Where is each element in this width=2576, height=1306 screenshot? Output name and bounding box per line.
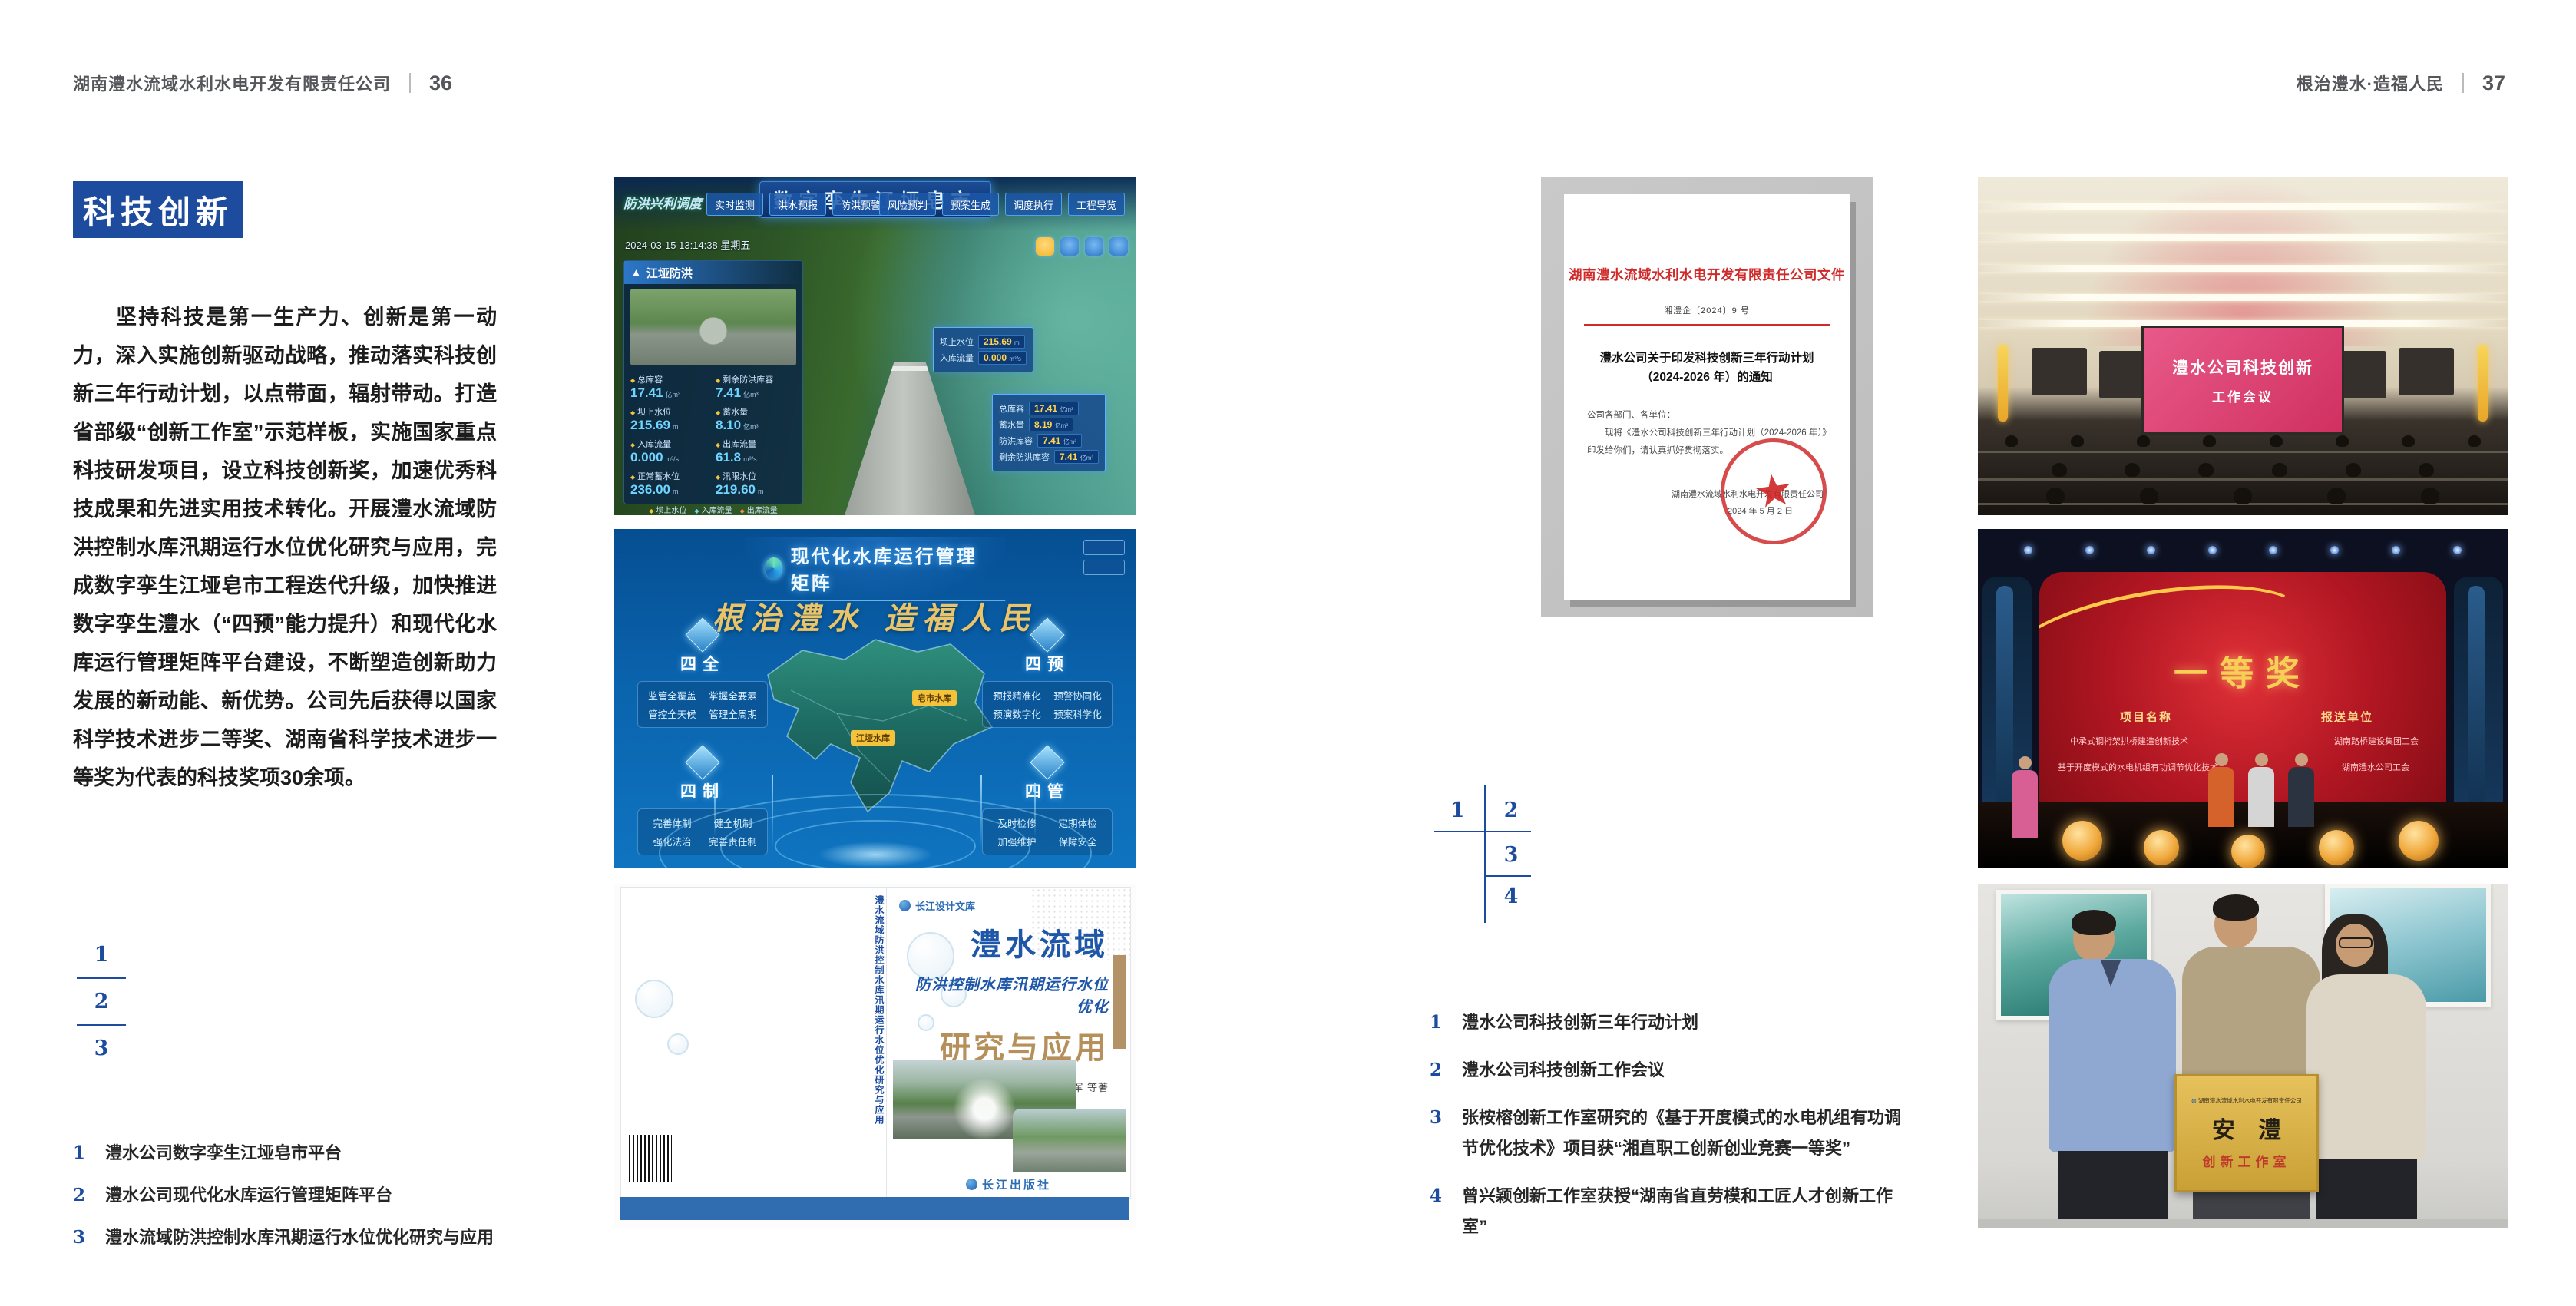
stat-cell: 剩余防洪库容7.41亿m³	[716, 373, 796, 402]
screen-button	[1083, 560, 1125, 575]
diamond-icon	[685, 617, 719, 652]
screen-subtitle: 工作会议	[2212, 386, 2273, 405]
page-number-right: 37	[2482, 71, 2505, 95]
audience-row	[2009, 488, 2477, 504]
figure-digital-twin-dashboard: 防洪兴利调度 数字孪生江垭皂市 实时监测 洪水预报 防洪预警 风险预判 预案生成…	[614, 177, 1136, 515]
stat-cell: 总库容17.41亿m³	[630, 373, 711, 402]
user-icon	[1036, 237, 1054, 256]
water-level-tooltip: 坝上水位215.69 m 入库流量0.000 m³/s	[933, 327, 1033, 372]
stat-cell: 汛限水位219.60m	[716, 470, 796, 499]
publisher-icon	[966, 1179, 977, 1190]
face	[2214, 901, 2257, 948]
studio-plaque: 湖南澧水流域水利水电开发有限责任公司 安澧 创新工作室	[2174, 1074, 2319, 1192]
star-icon: ★	[1751, 467, 1797, 517]
mountain-icon: ▲	[630, 266, 642, 279]
map-marker-zaoshi: 皂市水库	[912, 690, 957, 706]
floor-strip	[1978, 1219, 2508, 1228]
light-pillar	[980, 775, 982, 848]
caption-text: 张桉榕创新工作室研究的《基于开度模式的水电机组有功调节优化技术》项目获“湘直职工…	[1462, 1103, 1915, 1164]
group-name: 四预	[982, 652, 1113, 675]
stat-cell: 坝上水位215.69m	[630, 405, 711, 435]
dashboard-timestamp: 2024-03-15 13:14:38 星期五	[625, 237, 750, 252]
figure-number-divider	[77, 1024, 126, 1026]
award-row-project: 中承式钢桁架拱桥建造创新技术	[2070, 735, 2188, 747]
wall-panel	[2032, 348, 2087, 395]
caption-number: 4	[1430, 1181, 1462, 1212]
tab-project-tour: 工程导览	[1068, 193, 1125, 216]
globe-icon	[899, 900, 911, 911]
stage-spotlights	[2024, 546, 2462, 554]
figure-official-document: 湖南澧水流域水利水电开发有限责任公司文件 湘澧企〔2024〕9 号 澧水公司关于…	[1541, 177, 1873, 617]
award-row-unit: 湖南路桥建设集团工会	[2334, 735, 2419, 747]
caption-text: 澧水流域防洪控制水库汛期运行水位优化研究与应用	[105, 1222, 494, 1253]
book-title-region: 澧水流域	[903, 920, 1109, 964]
plaque-company-line: 湖南澧水流域水利水电开发有限责任公司	[2191, 1096, 2302, 1105]
group-name: 四全	[637, 652, 768, 675]
stage-light-orb	[2399, 821, 2439, 861]
figure-number: 1	[77, 943, 126, 967]
header-divider	[409, 73, 411, 93]
caption-item: 2 澧水公司现代化水库运行管理矩阵平台	[73, 1180, 503, 1211]
caption-text: 澧水公司科技创新工作会议	[1462, 1055, 1665, 1086]
stat-cell: 入库流量0.000m³/s	[630, 438, 711, 467]
figure-studio-group-photo: 湖南澧水流域水利水电开发有限责任公司 安澧 创新工作室	[1978, 884, 2508, 1228]
stage-light-orb	[2144, 830, 2179, 865]
glasses	[2339, 937, 2373, 948]
ripple-glow	[818, 841, 933, 868]
figure-number: 4	[1494, 884, 1528, 908]
figure-number: 1	[1440, 798, 1474, 822]
figure-meeting-photo: 澧水公司科技创新 工作会议	[1978, 177, 2508, 515]
header-divider	[2462, 73, 2464, 93]
layers-icon	[1060, 237, 1079, 256]
stat-cell: 正常蓄水位236.00m	[630, 470, 711, 499]
caption-number: 3	[1430, 1103, 1462, 1133]
book-front-cover: 长江设计文库 澧水流域 防洪控制水库汛期运行水位优化 研究与应用 洪兴骏 沈坤民…	[886, 887, 1131, 1199]
wall-panel	[2399, 348, 2454, 395]
desk-row	[1978, 451, 2508, 453]
plaque-studio-label: 创新工作室	[2203, 1151, 2291, 1170]
series-name: 长江设计文库	[915, 898, 975, 913]
series-logo: 长江设计文库	[899, 898, 975, 913]
tab-realtime-monitoring: 实时监测	[706, 193, 763, 216]
tab-flood-forecast: 洪水预报	[769, 193, 826, 216]
audience-row	[1993, 463, 2492, 477]
document-subject: 澧水公司关于印发科技创新三年行动计划 （2024-2026 年）的通知	[1564, 349, 1850, 387]
book-bottom-band	[620, 1197, 1129, 1220]
publisher-mark: 长江出版社	[887, 1176, 1130, 1192]
red-rule	[1584, 324, 1830, 326]
caption-number: 2	[73, 1180, 105, 1211]
document-number: 湘澧企〔2024〕9 号	[1564, 304, 1850, 316]
award-row-unit: 湖南澧水公司工会	[2342, 761, 2409, 773]
pillar-light	[2478, 345, 2488, 422]
chart-legend: 坝上水位 入库流量 出库流量	[624, 502, 802, 515]
ceiling-light	[1978, 234, 2508, 241]
caption-list-left: 1 澧水公司数字孪生江垭皂市平台 2 澧水公司现代化水库运行管理矩阵平台 3 澧…	[73, 1138, 503, 1265]
matrix-header: 现代化水库运行管理矩阵	[745, 537, 1006, 601]
stat-cell: 蓄水量8.10亿m³	[716, 405, 796, 435]
dashboard-tabs-left: 实时监测 洪水预报 防洪预警	[706, 193, 889, 216]
awardee-silhouette	[2208, 767, 2234, 827]
header-right: 根治澧水·造福人民 37	[2297, 71, 2505, 95]
basin-map	[745, 629, 1006, 821]
matrix-group-siyu: 四预 预报精准化预警协同化 预演数字化预案科学化	[982, 623, 1113, 728]
pillar-light	[1998, 345, 2008, 422]
award-title: 一等奖	[2039, 646, 2446, 695]
figure-number-divider	[77, 977, 126, 979]
figure-management-matrix: 现代化水库运行管理矩阵 根治澧水 造福人民 皂市水库 江垭水库 四全 监管全覆盖…	[614, 529, 1136, 868]
grid-hline	[1484, 875, 1531, 877]
caption-text: 澧水公司科技创新三年行动计划	[1462, 1007, 1698, 1038]
reservoir-panel-header: ▲ 江垭防洪	[624, 261, 802, 284]
ceiling-light	[1978, 203, 2508, 210]
ceiling-light	[1978, 294, 2508, 301]
dashboard-mode-label: 防洪兴利调度	[623, 193, 702, 212]
section-title-badge: 科技创新	[73, 181, 243, 238]
figure-number: 2	[77, 990, 126, 1013]
caption-item: 4 曾兴颖创新工作室获授“湖南省直劳模和工匠人才创新工作室”	[1430, 1181, 1915, 1242]
alert-icon	[1109, 237, 1128, 256]
tab-dispatch-execution: 调度执行	[1005, 193, 1062, 216]
host-silhouette	[2012, 770, 2038, 838]
figure-number-column-left: 1 2 3	[77, 943, 126, 1060]
caption-text: 澧水公司现代化水库运行管理矩阵平台	[105, 1180, 392, 1211]
caption-number: 1	[1430, 1007, 1462, 1038]
legs	[2058, 1151, 2168, 1228]
publisher-name: 长江出版社	[982, 1176, 1051, 1192]
figure-number-grid-right: 1 2 3 4	[1430, 782, 1537, 927]
grid-hline	[1434, 831, 1531, 832]
book-back-cover	[620, 887, 866, 1199]
figure-award-ceremony: 一等奖 项目名称 报送单位 中承式钢桁架拱桥建造创新技术 湖南路桥建设集团工会 …	[1978, 529, 2508, 868]
figure-book-cover: 澧水流域防洪控制水库汛期运行水位优化研究与应用 长江设计文库 澧水流域 防洪控制…	[614, 884, 1136, 1228]
group-name: 四管	[982, 779, 1113, 802]
screen-title: 澧水公司科技创新	[2172, 355, 2313, 379]
tan-bar-decoration	[1113, 955, 1126, 1049]
caption-item: 1 澧水公司科技创新三年行动计划	[1430, 1007, 1915, 1038]
grid-vline	[1484, 785, 1486, 923]
reservoir-stats: 总库容17.41亿m³ 剩余防洪库容7.41亿m³ 坝上水位215.69m 蓄水…	[624, 370, 802, 502]
column-header-unit: 报送单位	[2321, 709, 2373, 725]
stage-side-frame	[2454, 577, 2503, 815]
barcode	[626, 1132, 675, 1185]
screen-button	[1083, 540, 1125, 555]
diamond-icon	[1030, 745, 1064, 779]
legs	[2316, 1159, 2417, 1228]
document-header: 湖南澧水流域水利水电开发有限责任公司文件	[1564, 265, 1850, 284]
figure-number: 2	[1494, 798, 1528, 822]
stat-cell: 出库流量61.8m³/s	[716, 438, 796, 467]
plaque-studio-name: 安澧	[2189, 1111, 2304, 1145]
light-pillar	[1034, 783, 1036, 837]
torso	[2306, 974, 2426, 1160]
tab-plan-generation: 预案生成	[942, 193, 999, 216]
company-logo-icon	[765, 557, 783, 579]
document-page: 湖南澧水流域水利水电开发有限责任公司文件 湘澧企〔2024〕9 号 澧水公司关于…	[1564, 194, 1850, 600]
figure-number: 3	[1494, 843, 1528, 867]
caption-number: 1	[73, 1138, 105, 1169]
caption-item: 1 澧水公司数字孪生江垭皂市平台	[73, 1138, 503, 1169]
map-marker-jiangya: 江垭水库	[851, 730, 895, 746]
reservoir-panel-title: 江垭防洪	[646, 265, 693, 281]
caption-number: 3	[73, 1222, 105, 1253]
reservoir-panel: ▲ 江垭防洪 总库容17.41亿m³ 剩余防洪库容7.41亿m³ 坝上水位215…	[623, 260, 803, 504]
group-name: 四制	[637, 779, 768, 802]
locate-icon	[1085, 237, 1103, 256]
dam-thumbnail	[630, 289, 796, 365]
book-title-subject: 防洪控制水库汛期运行水位优化	[903, 972, 1109, 1017]
audience-row	[1978, 435, 2508, 447]
matrix-title: 现代化水库运行管理矩阵	[791, 541, 986, 595]
face	[2073, 916, 2115, 962]
diamond-icon	[1030, 617, 1064, 652]
bubble-decoration	[667, 1033, 689, 1055]
stage-light-orb	[2231, 835, 2265, 868]
caption-item: 2 澧水公司科技创新工作会议	[1430, 1055, 1915, 1086]
led-screen: 一等奖 项目名称 报送单位 中承式钢桁架拱桥建造创新技术 湖南路桥建设集团工会 …	[2039, 572, 2446, 802]
caption-item: 3 张桉榕创新工作室研究的《基于开度模式的水电机组有功调节优化技术》项目获“湘直…	[1430, 1103, 1915, 1164]
header-left: 湖南澧水流域水利水电开发有限责任公司 36	[73, 71, 452, 95]
stage-light-orb	[2062, 821, 2102, 861]
desk-row	[1978, 478, 2508, 481]
tab-risk-prediction: 风险预判	[879, 193, 936, 216]
body-paragraph: 坚持科技是第一生产力、创新是第一动力，深入实施创新驱动战略，推动落实科技创新三年…	[73, 298, 497, 797]
caption-item: 3 澧水流域防洪控制水库汛期运行水位优化研究与应用	[73, 1222, 503, 1253]
page-number-left: 36	[429, 71, 452, 95]
book-spine: 澧水流域防洪控制水库汛期运行水位优化研究与应用	[865, 887, 886, 1199]
matrix-group-siquan: 四全 监管全覆盖掌握全要素 管控全天候管理全周期	[637, 623, 768, 728]
ceiling-light	[1978, 320, 2508, 327]
ceiling-light	[1978, 265, 2508, 272]
caption-text: 澧水公司数字孪生江垭皂市平台	[105, 1138, 342, 1169]
dam-illustration	[845, 362, 975, 515]
award-row-project: 基于开度模式的水电机组有功调节优化技术	[2058, 761, 2218, 773]
dashboard-tool-icons	[1036, 237, 1128, 256]
capacity-info-panel: 总库容17.41 亿m³ 蓄水量8.19 亿m³ 防洪库容7.41 亿m³ 剩余…	[992, 394, 1106, 471]
caption-number: 2	[1430, 1055, 1462, 1086]
powerhouse-photo	[1013, 1109, 1126, 1172]
light-pillar	[772, 775, 773, 848]
bubble-decoration	[635, 980, 673, 1018]
awardee-silhouette	[2248, 767, 2274, 827]
brochure-spread: 湖南澧水流域水利水电开发有限责任公司 36 根治澧水·造福人民 37 科技创新 …	[0, 0, 2576, 1306]
awardee-silhouette	[2288, 767, 2314, 827]
diamond-icon	[685, 745, 719, 779]
caption-list-right: 1 澧水公司科技创新三年行动计划 2 澧水公司科技创新工作会议 3 张桉榕创新工…	[1430, 1007, 1915, 1254]
light-pillar	[714, 783, 716, 837]
slogan-text: 根治澧水·造福人民	[2297, 71, 2444, 95]
caption-text: 曾兴颖创新工作室获授“湖南省直劳模和工匠人才创新工作室”	[1462, 1181, 1915, 1242]
torso	[2049, 959, 2176, 1152]
figure-number: 3	[77, 1037, 126, 1060]
company-name: 湖南澧水流域水利水电开发有限责任公司	[73, 71, 391, 95]
meeting-screen: 澧水公司科技创新 工作会议	[2144, 328, 2342, 432]
dashboard-tabs-right: 风险预判 预案生成 调度执行 工程导览	[879, 193, 1125, 216]
stage-light-orb	[2319, 830, 2354, 865]
column-header-project: 项目名称	[2120, 709, 2172, 725]
